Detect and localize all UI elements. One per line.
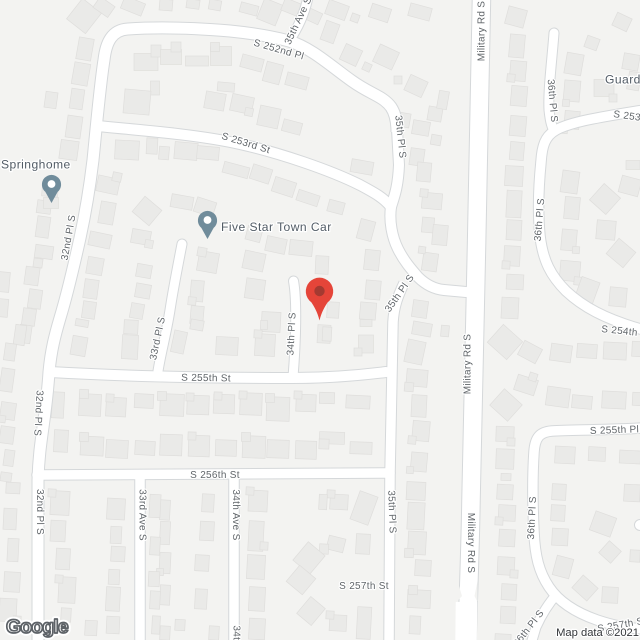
svg-text:Five Star Town Car: Five Star Town Car bbox=[221, 220, 332, 234]
svg-text:34th Ave S: 34th Ave S bbox=[230, 489, 241, 540]
svg-text:Springhome: Springhome bbox=[1, 158, 71, 172]
svg-text:Guardian: Guardian bbox=[605, 73, 640, 87]
svg-text:Military Rd S: Military Rd S bbox=[463, 334, 474, 395]
svg-text:33rd Ave S: 33rd Ave S bbox=[137, 489, 148, 541]
svg-text:34th Ave S: 34th Ave S bbox=[231, 625, 242, 640]
svg-text:S 255th St: S 255th St bbox=[181, 373, 231, 385]
svg-text:Google: Google bbox=[6, 616, 69, 638]
svg-text:S 256th St: S 256th St bbox=[190, 470, 240, 481]
svg-text:Military Rd S: Military Rd S bbox=[465, 513, 476, 574]
svg-text:36th Pl S: 36th Pl S bbox=[526, 496, 539, 540]
svg-text:34th Pl S: 34th Pl S bbox=[285, 312, 298, 356]
svg-text:32nd Pl S: 32nd Pl S bbox=[34, 489, 45, 535]
svg-text:S 255th Pl: S 255th Pl bbox=[590, 424, 640, 437]
svg-text:Military Rd S: Military Rd S bbox=[477, 1, 488, 62]
svg-text:Map data ©2021: Map data ©2021 bbox=[556, 627, 639, 639]
svg-text:S 257th St: S 257th St bbox=[339, 581, 389, 592]
svg-text:35th Pl S: 35th Pl S bbox=[385, 490, 398, 534]
